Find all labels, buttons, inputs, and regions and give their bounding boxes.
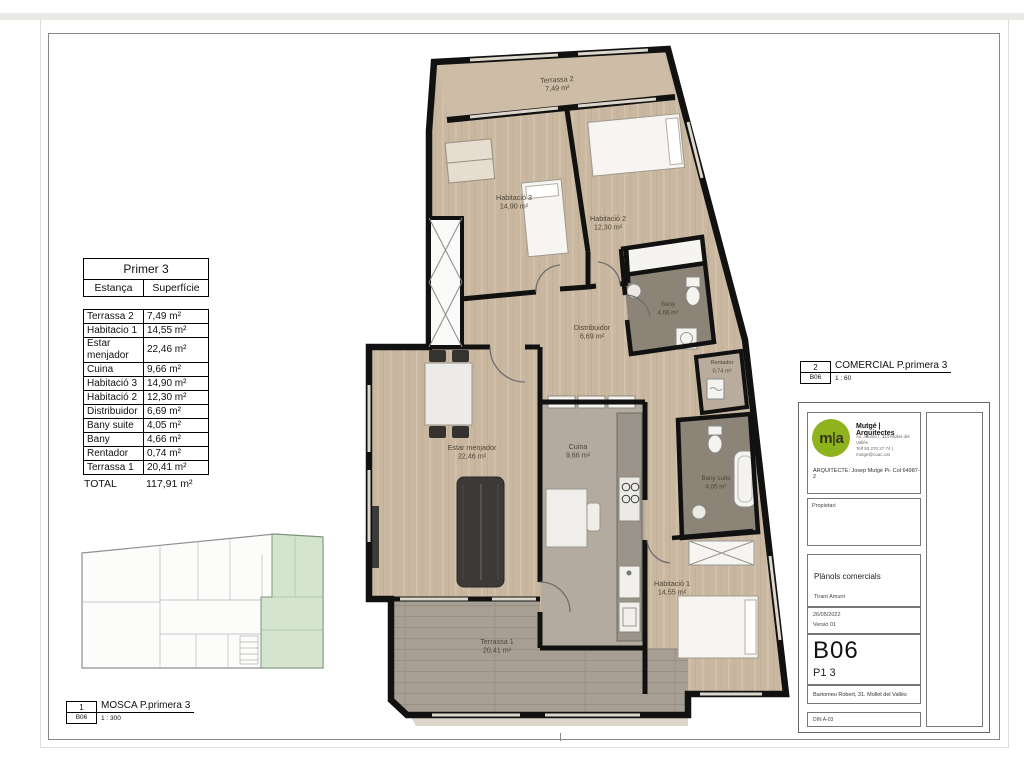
sheet-code-sub: P1 3 [813,667,836,679]
room-name-cell: Habitació 2 [84,391,144,405]
site-address: Bartomeu Robert, 31. Mollet del Vallès [813,692,907,698]
surface-table: Primer 3 Estança Superfície Terrassa 27,… [83,258,209,490]
logo-letter-a: a [835,430,842,447]
callout-scale: 1 : 60 [831,373,851,384]
logo-letter-m: m [819,430,831,447]
firm-address-line1: Av. Jaume I, 114 Mollet del Vallès [856,434,920,446]
column-header-room: Estança [84,280,144,296]
room-area-cell: 4,05 m² [144,419,209,433]
room-area-cell: 7,49 m² [144,310,209,324]
table-row: Cuina9,66 m² [84,363,209,377]
room-area-cell: 4,66 m² [144,433,209,447]
sheet-code-box: B06 P1 3 [807,634,921,685]
room-area-cell: 0,74 m² [144,447,209,461]
architect-name: ARQUITECTE: Josep Mutgé Pi- Col 64987-2 [813,468,920,480]
callout-scale: 1 : 300 [97,713,121,724]
room-label-terrassa-2: Terrassa 27,49 m² [540,74,575,93]
callout-code: B06 [66,713,97,724]
site-box: Bartomeu Robert, 31. Mollet del Vallès [807,685,921,704]
room-label-habitacio-3: Habitació 314,90 m² [496,193,532,211]
chair [429,426,446,438]
room-name-cell: Bany [84,433,144,447]
owner-box: Propietari [807,498,921,546]
table-row: Bany4,66 m² [84,433,209,447]
project-subtitle: Tirant Amunt [814,594,845,600]
stair-shaft [429,218,462,347]
firm-address: Av. Jaume I, 114 Mollet del Vallès Telf … [856,434,920,458]
column-header-area: Superfície [144,280,208,296]
table-header: Estança Superfície [83,280,209,297]
bathroom-sink [692,505,706,519]
drawing-sheet: Terrassa 27,49 m²Habitació 314,90 m²Habi… [0,0,1024,768]
version: Versió 01 [813,622,836,628]
room-area-cell: 6,69 m² [144,405,209,419]
room-name-cell: Habitació 3 [84,377,144,391]
room-label-habitacio-2: Habitació 212,30 m² [590,214,626,232]
total-value: 117,91 m² [146,478,193,490]
oven [619,602,640,632]
callout-title: COMERCIAL P.primera 3 [831,360,951,373]
kitchen-table [546,489,587,547]
paper-format: DIN A-03 [813,717,833,723]
table-row: Bany suite4,05 m² [84,419,209,433]
firm-logo: m|a [812,419,850,457]
room-area-cell: 9,66 m² [144,363,209,377]
room-area-cell: 20,41 m² [144,461,209,475]
room-label-terrassa-1: Terrassa 120,41 m² [480,637,514,655]
room-name-cell: Bany suite [84,419,144,433]
table-title: Primer 3 [83,258,209,280]
room-area-cell: 22,46 m² [144,338,209,363]
callout-code: B06 [800,373,831,384]
table-row: Terrassa 120,41 m² [84,461,209,475]
dining-table [425,363,472,425]
toilet [708,426,722,435]
table-row: Habitació 212,30 m² [84,391,209,405]
surface-table-body: Terrassa 27,49 m²Habitacio 114,55 m²Esta… [83,309,209,475]
room-name-cell: Terrassa 2 [84,310,144,324]
title-block-empty-column [926,412,983,727]
total-label: TOTAL [84,478,146,490]
room-area-cell: 14,55 m² [144,324,209,338]
date: 26/05/2022 [813,612,841,618]
toilet [686,277,700,287]
room-area-cell: 14,90 m² [144,377,209,391]
table-row: Distribuidor6,69 m² [84,405,209,419]
room-label-habitacio-1: Habitació 114,55 m² [654,579,690,597]
project-box: Plànols comercials Tirant Amunt [807,554,921,607]
room-name-cell: Distribuidor [84,405,144,419]
callout-comercial: 2 COMERCIAL P.primera 3 B06 1 : 60 [800,360,951,384]
chair [452,426,469,438]
owner-label: Propietari [812,503,836,509]
chair [452,350,469,362]
firm-address-line2: Telf 93 270 27 74 | mutge@coac.cat [856,446,920,458]
architect-box: m|a Mutgé | Arquitectes Av. Jaume I, 114… [807,412,921,494]
table-total-row: TOTAL 117,91 m² [83,478,209,490]
format-box: DIN A-03 [807,712,921,727]
room-area-cell: 12,30 m² [144,391,209,405]
room-name-cell: Estar menjador [84,338,144,363]
table-row: Habitacio 114,55 m² [84,324,209,338]
callout-title: MOSCA P.primera 3 [97,700,194,713]
kitchen-chair [587,503,600,531]
room-bany-floor [624,262,714,354]
project-title: Plànols comercials [814,572,881,581]
floor-plan: Terrassa 27,49 m²Habitació 314,90 m²Habi… [369,49,786,726]
room-name-cell: Habitacio 1 [84,324,144,338]
title-block: m|a Mutgé | Arquitectes Av. Jaume I, 114… [798,402,990,733]
table-row: Rentador0,74 m² [84,447,209,461]
date-box: 26/05/2022 Versió 01 [807,607,921,634]
room-name-cell: Terrassa 1 [84,461,144,475]
callout-number: 2 [800,361,831,373]
callout-number: 1 [66,701,97,713]
callout-mosca: 1 MOSCA P.primera 3 B06 1 : 300 [66,700,194,724]
room-label-cuina: Cuina9,66 m² [566,442,591,460]
table-row: Habitació 314,90 m² [84,377,209,391]
key-plan [82,534,323,668]
chair [429,350,446,362]
room-name-cell: Cuina [84,363,144,377]
table-row: Estar menjador22,46 m² [84,338,209,363]
table-row: Terrassa 27,49 m² [84,310,209,324]
sheet-code: B06 [813,637,859,665]
room-name-cell: Rentador [84,447,144,461]
